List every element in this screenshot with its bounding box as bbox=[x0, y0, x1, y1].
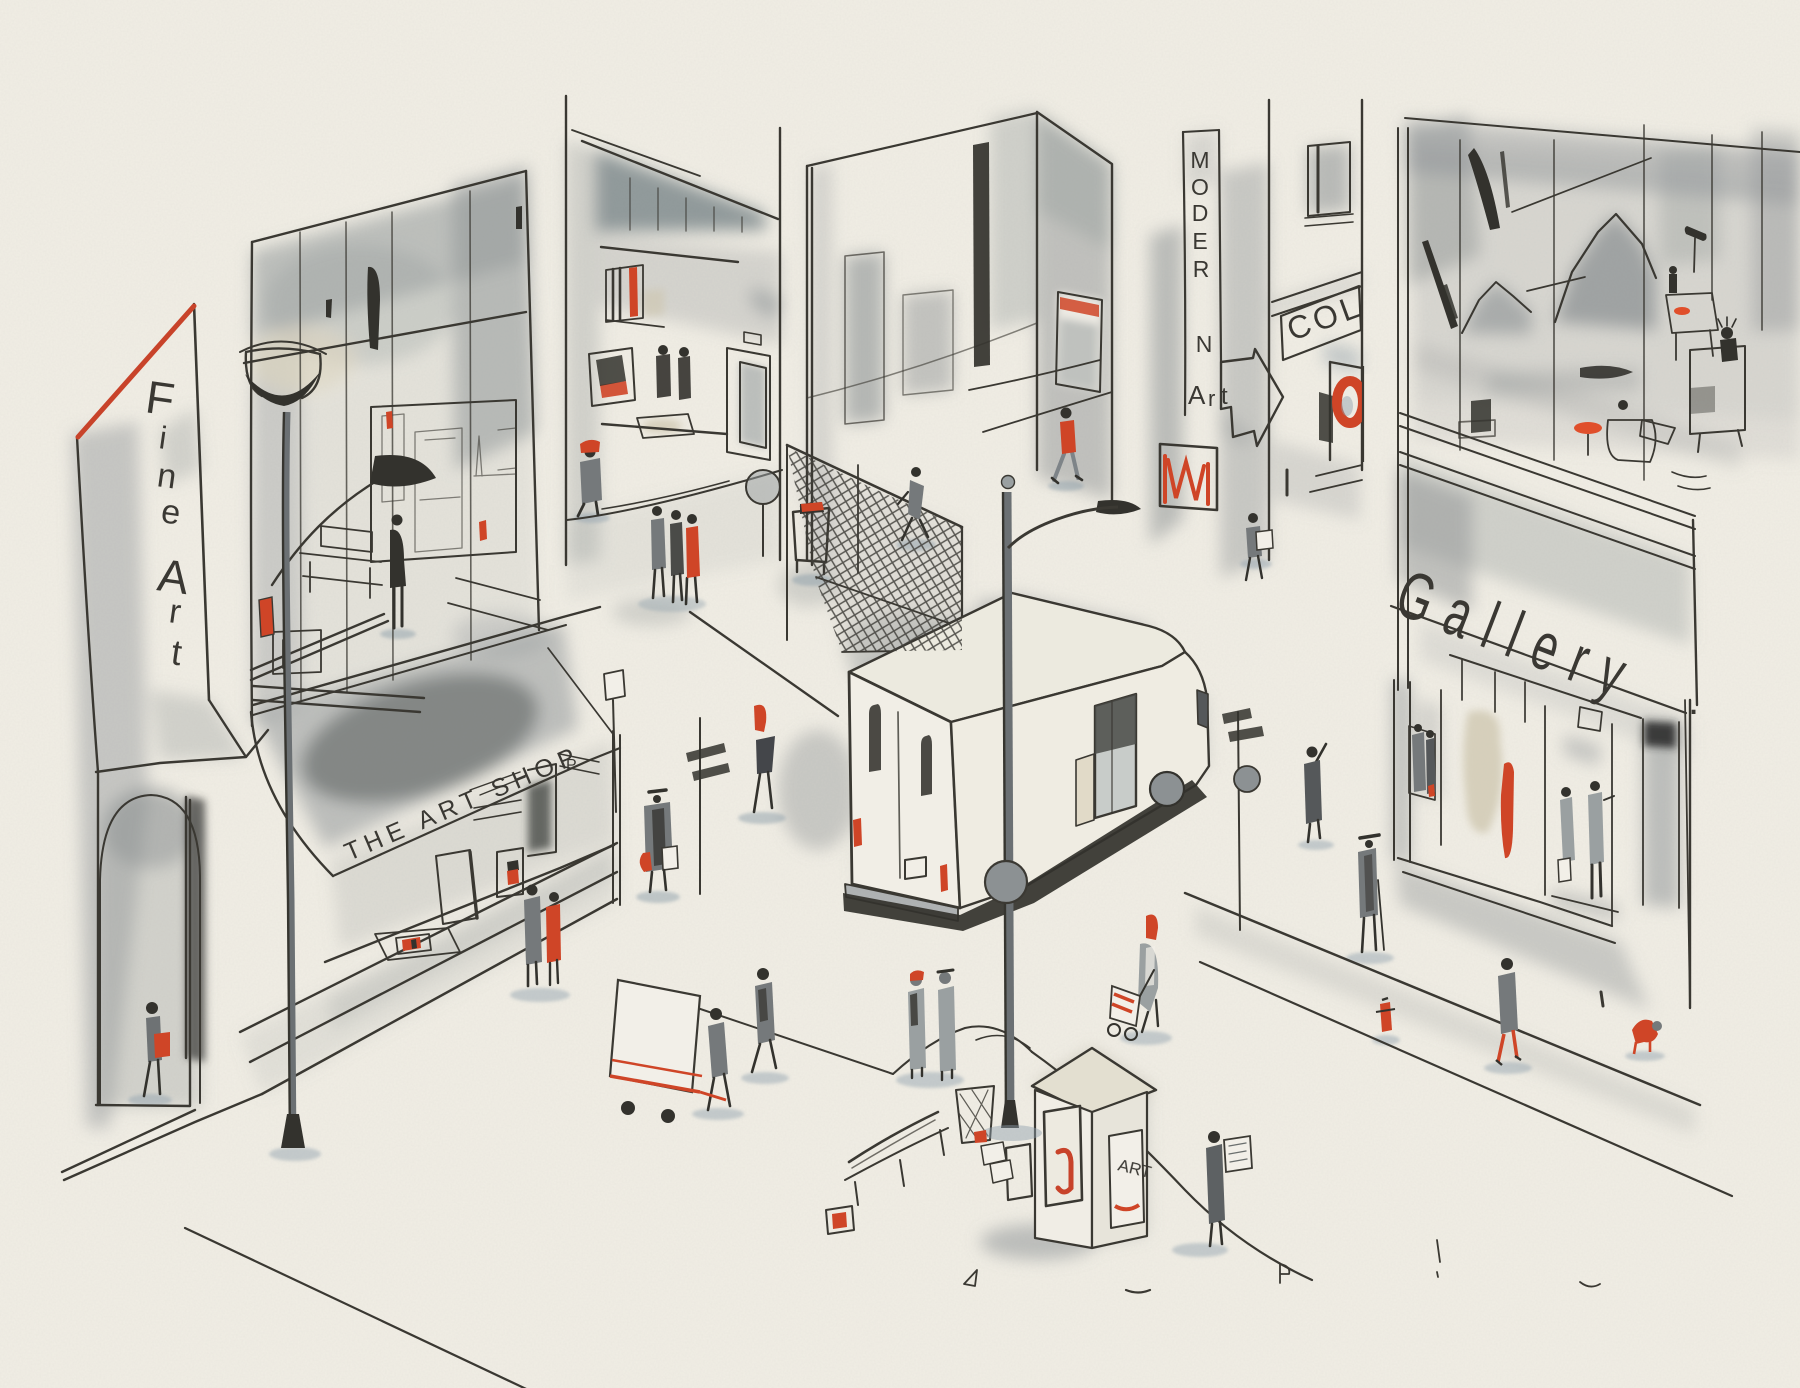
svg-text:O: O bbox=[1191, 174, 1209, 200]
svg-text:D: D bbox=[1192, 200, 1209, 226]
svg-text:M: M bbox=[1190, 147, 1209, 173]
svg-text:t: t bbox=[1221, 383, 1228, 410]
svg-text:E: E bbox=[1192, 228, 1207, 254]
svg-text:.: . bbox=[1688, 679, 1699, 723]
svg-text:P: P bbox=[566, 757, 577, 774]
svg-text:N: N bbox=[1196, 331, 1213, 357]
svg-text:R: R bbox=[1193, 256, 1210, 282]
svg-text:r: r bbox=[1208, 386, 1215, 411]
svg-text:A: A bbox=[1188, 380, 1206, 410]
